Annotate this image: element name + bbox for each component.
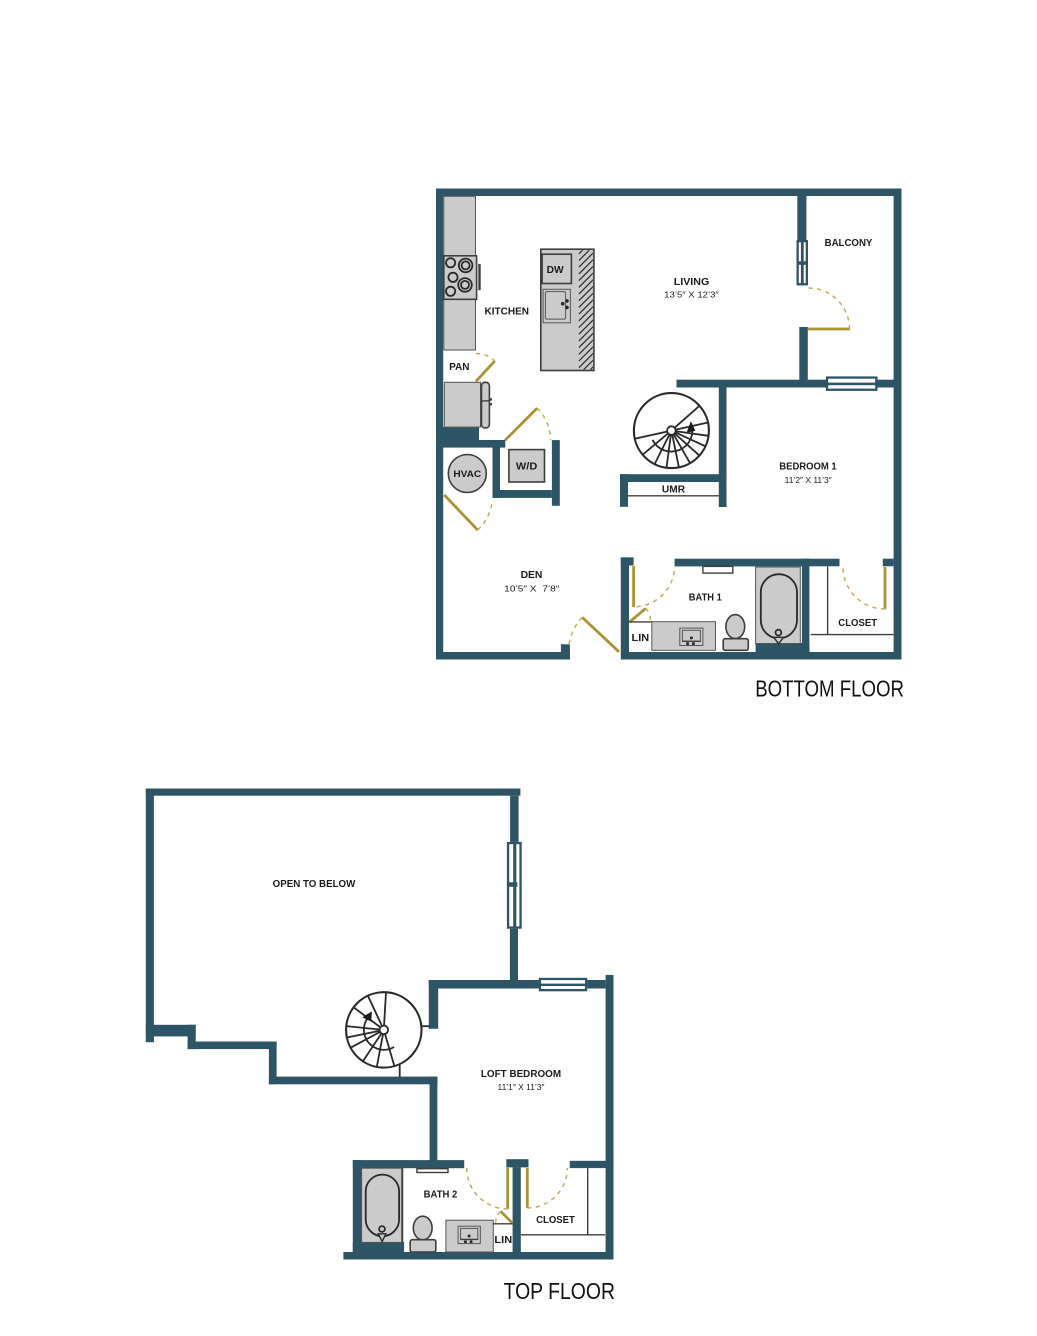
svg-text:LIN: LIN bbox=[494, 1235, 512, 1246]
svg-text:CLOSET: CLOSET bbox=[838, 618, 877, 629]
svg-text:TOP FLOOR: TOP FLOOR bbox=[504, 1278, 615, 1304]
svg-text:BOTTOM FLOOR: BOTTOM FLOOR bbox=[755, 676, 904, 702]
svg-text:DW: DW bbox=[547, 265, 565, 276]
svg-text:DEN: DEN bbox=[521, 570, 543, 581]
svg-text:13’5″ X 12’3″: 13’5″ X 12’3″ bbox=[664, 290, 719, 299]
svg-text:11’1″ X 11’3″: 11’1″ X 11’3″ bbox=[498, 1083, 545, 1092]
svg-text:LIVING: LIVING bbox=[674, 277, 710, 288]
svg-text:PAN: PAN bbox=[449, 362, 469, 373]
svg-text:11’2″ X 11’3″: 11’2″ X 11’3″ bbox=[785, 476, 832, 485]
svg-text:10’5″ X 7’8″: 10’5″ X 7’8″ bbox=[504, 585, 559, 594]
svg-text:W/D: W/D bbox=[516, 461, 537, 472]
svg-text:BATH 1: BATH 1 bbox=[689, 592, 723, 603]
svg-text:BEDROOM 1: BEDROOM 1 bbox=[779, 462, 837, 473]
svg-text:HVAC: HVAC bbox=[453, 468, 481, 479]
svg-text:UMR: UMR bbox=[662, 484, 685, 495]
svg-text:BATH 2: BATH 2 bbox=[424, 1190, 458, 1201]
svg-text:LOFT BEDROOM: LOFT BEDROOM bbox=[481, 1069, 561, 1080]
svg-text:BALCONY: BALCONY bbox=[825, 238, 873, 249]
svg-text:OPEN TO BELOW: OPEN TO BELOW bbox=[273, 879, 356, 890]
svg-text:CLOSET: CLOSET bbox=[536, 1215, 575, 1226]
svg-text:KITCHEN: KITCHEN bbox=[485, 307, 530, 318]
svg-text:LIN: LIN bbox=[632, 633, 650, 644]
